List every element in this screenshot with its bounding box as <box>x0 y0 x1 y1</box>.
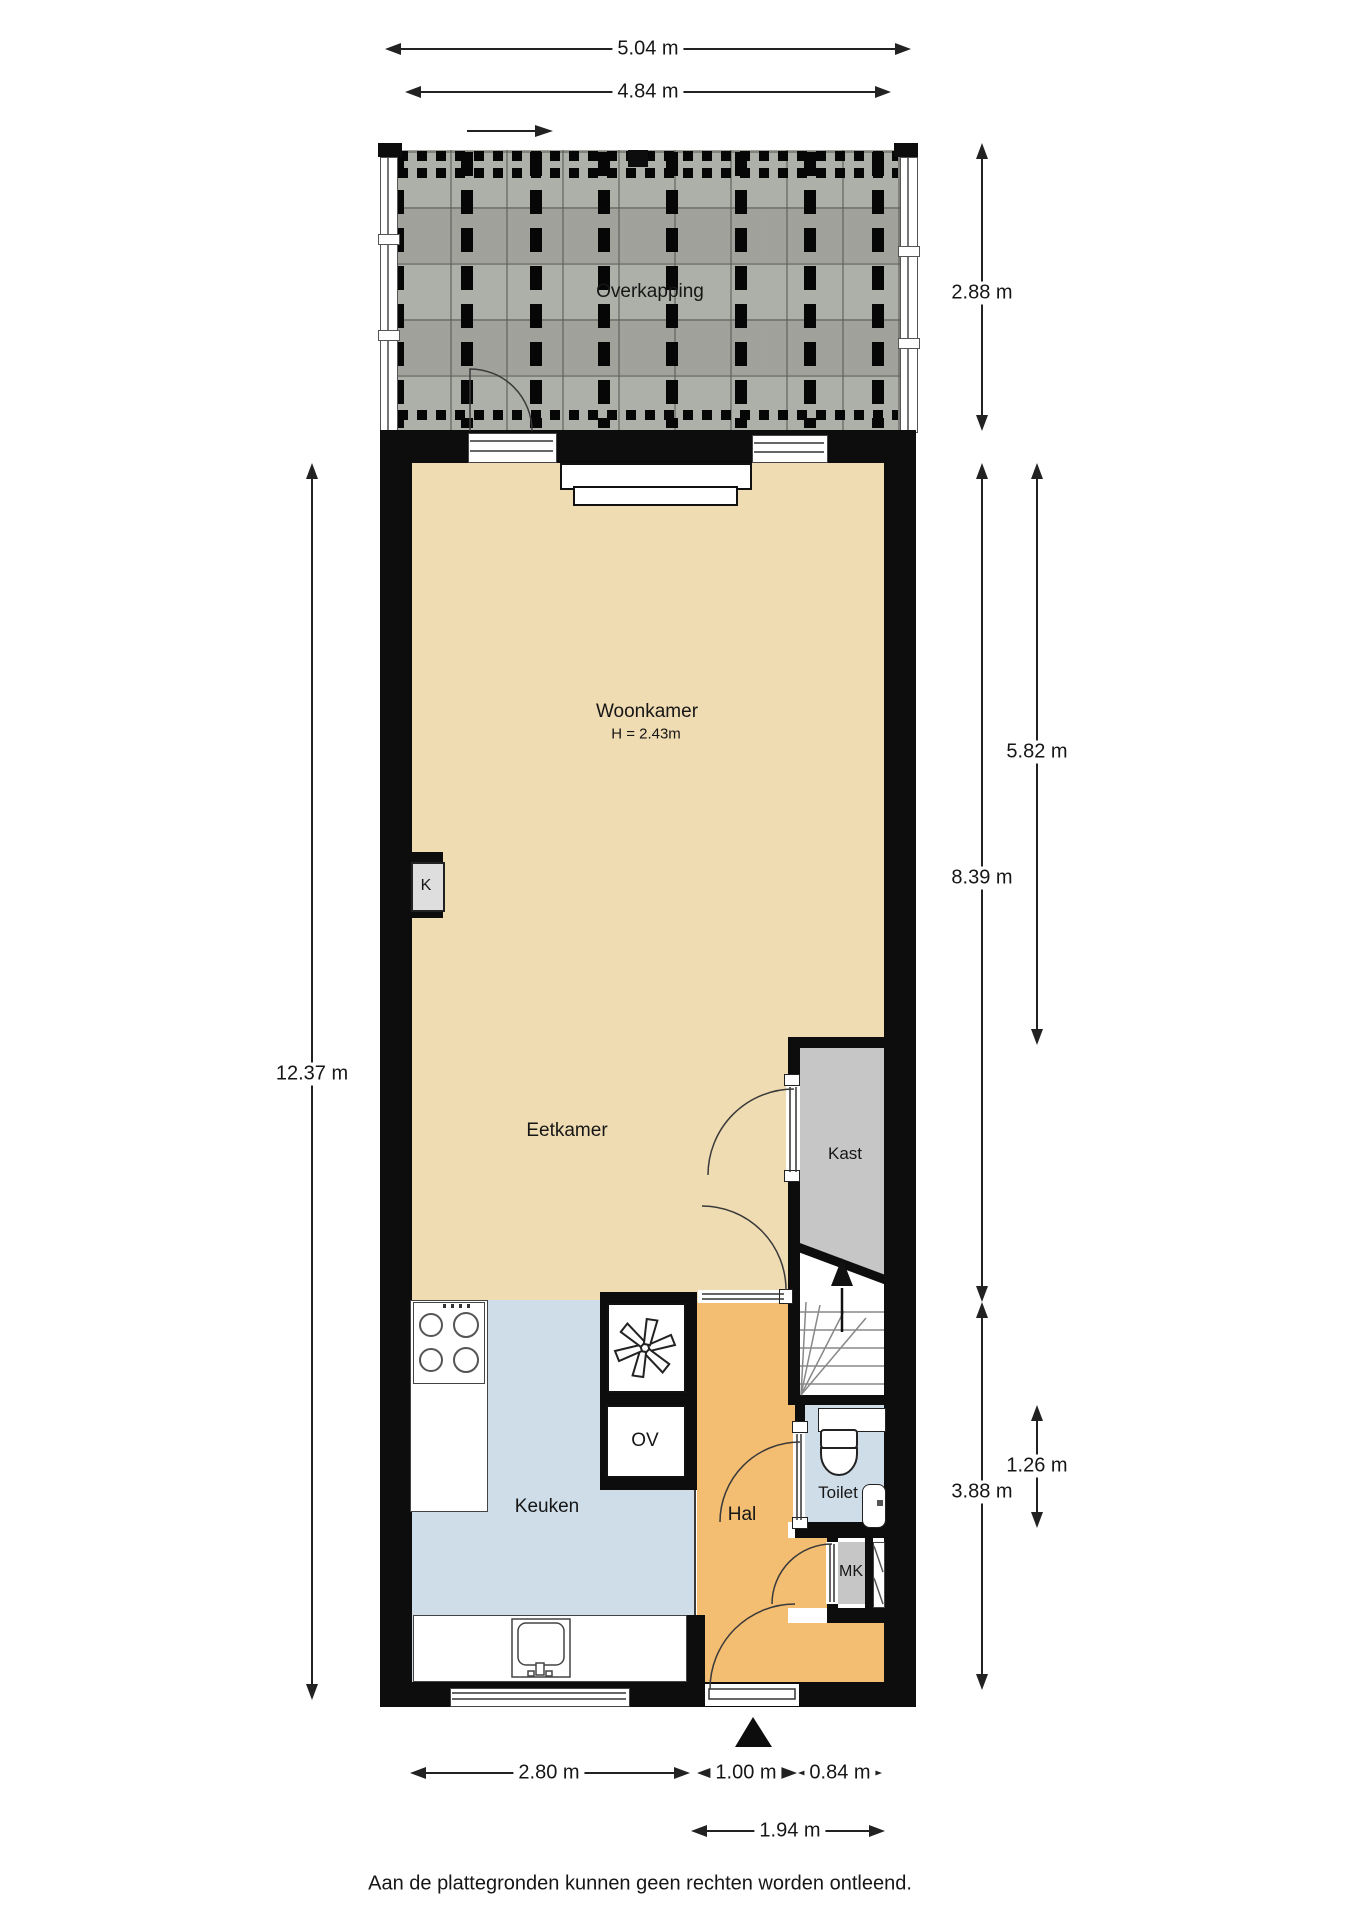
window-glazing-lines <box>452 441 834 1699</box>
direction-arrow-icon <box>467 125 553 137</box>
dim-label-hal-total-width: 1.94 m <box>754 1820 825 1843</box>
footer-disclaimer: Aan de plattegronden kunnen geen rechten… <box>368 1873 912 1896</box>
dim-label-woon-keuken-depth: 8.39 m <box>946 867 1017 890</box>
room-label-k: K <box>421 877 432 895</box>
room-label-keuken: Keuken <box>515 1496 579 1518</box>
dim-label-keuken-width: 2.80 m <box>513 1762 584 1785</box>
dim-label-total-width: 5.04 m <box>612 38 683 61</box>
room-label-mk: MK <box>839 1563 863 1581</box>
eetkamer-hal-door-arc <box>702 1206 786 1290</box>
dim-label-total-depth: 12.37 m <box>271 1063 353 1086</box>
dim-label-woonkamer-depth: 5.82 m <box>1001 741 1072 764</box>
room-label-eetkamer: Eetkamer <box>526 1120 607 1142</box>
kast-door-arc <box>708 1089 794 1175</box>
room-label-toilet: Toilet <box>818 1483 858 1503</box>
room-label-ov: OV <box>631 1430 658 1452</box>
dim-label-keuken-depth: 3.88 m <box>946 1481 1017 1504</box>
door-swing-arcs <box>470 369 832 1689</box>
mk-door-arc <box>772 1544 832 1604</box>
floorplan-page: Overkapping Woonkamer H = 2.43m Eetkamer… <box>0 0 1358 1920</box>
back-door-arc <box>470 369 532 431</box>
dim-label-hal-width: 1.00 m <box>710 1762 781 1785</box>
room-label-hal: Hal <box>728 1504 757 1526</box>
room-label-overkapping: Overkapping <box>596 281 704 303</box>
front-door-leaf <box>709 1689 795 1699</box>
sink-icon <box>512 1619 570 1677</box>
dim-label-entree-width: 0.84 m <box>804 1762 875 1785</box>
entrance-arrow-icon <box>735 1717 772 1747</box>
stove-burners-icon <box>420 1304 478 1372</box>
dim-label-toilet-depth: 1.26 m <box>1001 1455 1072 1478</box>
room-label-woonkamer: Woonkamer <box>596 701 698 723</box>
dim-label-inner-width: 4.84 m <box>612 81 683 104</box>
toilet-icon <box>821 1430 857 1475</box>
room-label-kast: Kast <box>828 1144 862 1164</box>
duct-shaft-lines <box>874 1546 883 1604</box>
front-door-arc <box>710 1604 795 1689</box>
extractor-fan-icon <box>615 1316 675 1381</box>
room-label-ceiling-height: H = 2.43m <box>611 726 681 743</box>
dim-label-overkapping-depth: 2.88 m <box>946 282 1017 305</box>
basin-tap <box>877 1500 883 1506</box>
dimension-lines <box>306 43 1043 1837</box>
